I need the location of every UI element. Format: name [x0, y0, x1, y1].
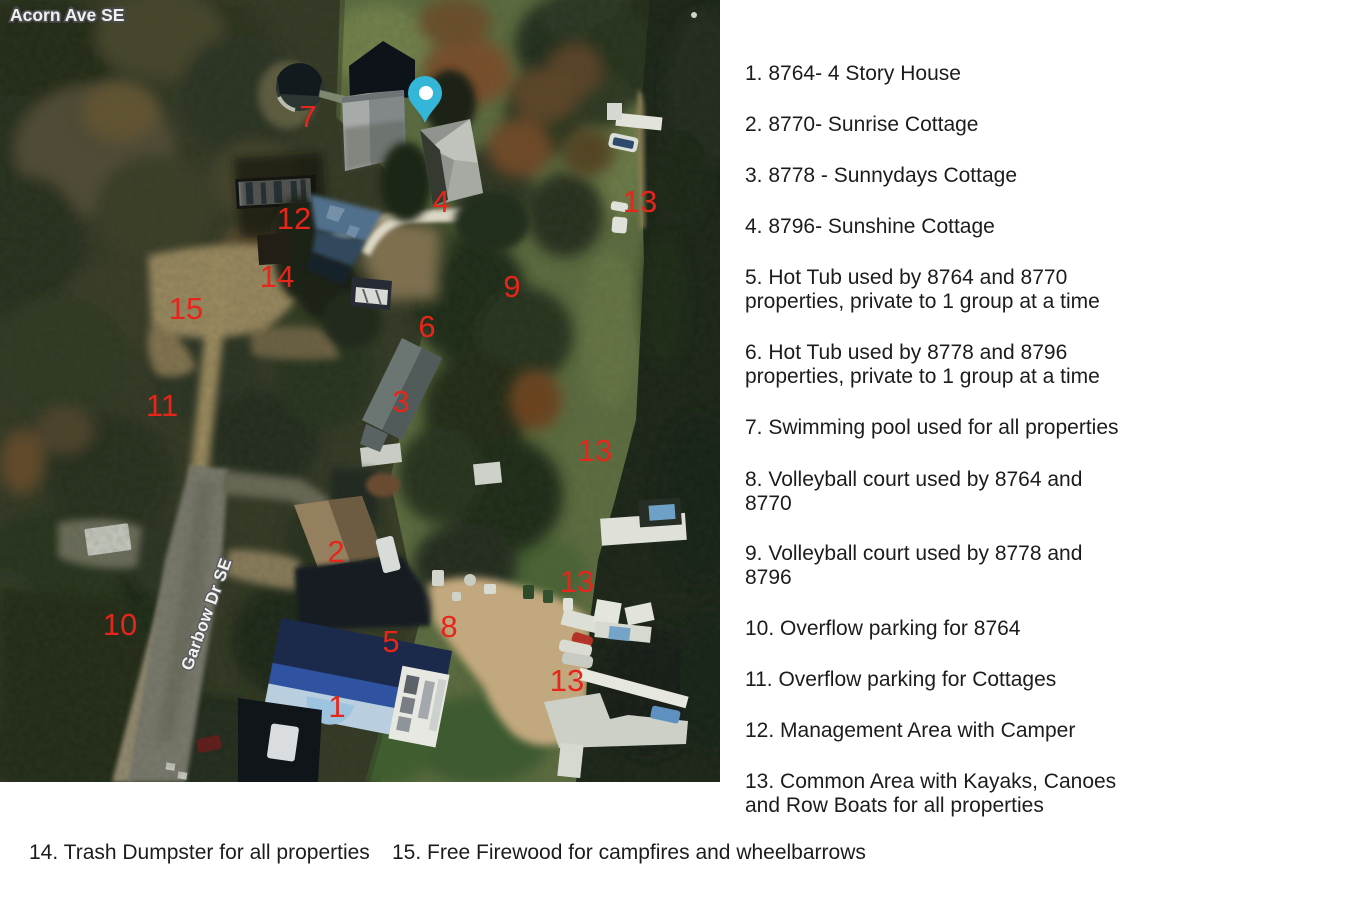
svg-text:7: 7	[299, 99, 316, 134]
svg-text:13: 13	[560, 564, 594, 599]
svg-text:12: 12	[277, 201, 311, 236]
svg-text:4: 4	[432, 184, 449, 219]
svg-text:8: 8	[440, 609, 457, 644]
svg-text:3: 3	[392, 384, 409, 419]
svg-text:Acorn Ave SE: Acorn Ave SE	[10, 5, 124, 25]
svg-text:10: 10	[103, 607, 137, 642]
svg-text:14: 14	[260, 259, 294, 294]
svg-text:5: 5	[382, 624, 399, 659]
svg-text:9: 9	[503, 269, 520, 304]
svg-text:6: 6	[418, 309, 435, 344]
svg-text:13: 13	[550, 663, 584, 698]
svg-text:13: 13	[578, 433, 612, 468]
svg-text:15: 15	[169, 291, 203, 326]
svg-text:11: 11	[146, 388, 178, 423]
svg-text:13: 13	[623, 184, 657, 219]
svg-text:2: 2	[327, 534, 344, 569]
svg-text:1: 1	[328, 689, 345, 724]
